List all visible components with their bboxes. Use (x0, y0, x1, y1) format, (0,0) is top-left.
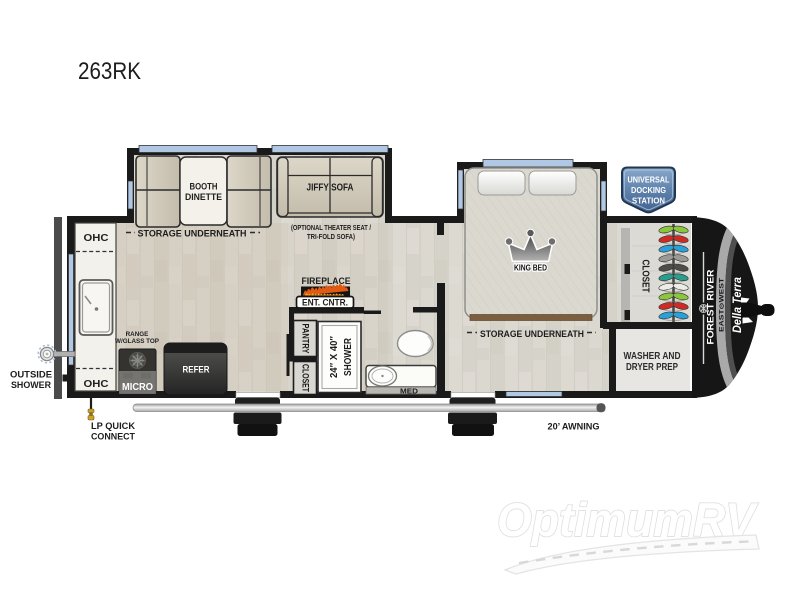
svg-text:(OPTIONAL THEATER SEAT /: (OPTIONAL THEATER SEAT / (291, 225, 371, 232)
svg-text:263RK: 263RK (78, 58, 141, 85)
svg-text:WASHER AND: WASHER AND (624, 351, 681, 362)
svg-text:RANGE: RANGE (126, 331, 149, 338)
svg-text:CONNECT: CONNECT (91, 432, 135, 443)
svg-text:EAST⊙WEST: EAST⊙WEST (718, 278, 725, 332)
svg-text:PANTRY: PANTRY (301, 324, 311, 354)
svg-text:W/GLASS TOP: W/GLASS TOP (115, 338, 159, 345)
svg-text:FIREPLACE: FIREPLACE (302, 276, 351, 287)
svg-text:LP QUICK: LP QUICK (91, 421, 135, 432)
svg-text:OHC: OHC (84, 378, 109, 390)
svg-text:DRYER PREP: DRYER PREP (626, 362, 678, 373)
svg-text:20’ AWNING: 20’ AWNING (548, 422, 600, 432)
svg-text:MICRO: MICRO (122, 382, 153, 393)
svg-text:24″ X 40″: 24″ X 40″ (328, 336, 340, 378)
svg-text:ENT. CNTR.: ENT. CNTR. (302, 298, 348, 308)
svg-text:CLOSET: CLOSET (301, 364, 311, 392)
svg-text:DOCKING: DOCKING (631, 186, 666, 195)
svg-text:REFER: REFER (183, 365, 210, 376)
svg-text:SHOWER: SHOWER (11, 380, 51, 391)
svg-text:TRI-FOLD SOFA): TRI-FOLD SOFA) (307, 234, 355, 241)
svg-text:UNIVERSAL: UNIVERSAL (628, 176, 670, 185)
svg-text:BOOTH: BOOTH (190, 182, 218, 192)
svg-text:CLOSET: CLOSET (640, 260, 652, 293)
svg-text:DINETTE: DINETTE (185, 192, 222, 202)
svg-text:SHOWER: SHOWER (342, 338, 354, 376)
svg-text:FOREST RIVER: FOREST RIVER (706, 269, 716, 345)
svg-text:STORAGE UNDERNEATH: STORAGE UNDERNEATH (480, 329, 584, 339)
svg-text:STORAGE UNDERNEATH: STORAGE UNDERNEATH (138, 229, 247, 239)
svg-text:STATION: STATION (632, 197, 665, 206)
svg-text:JIFFY SOFA: JIFFY SOFA (307, 182, 354, 194)
svg-text:OHC: OHC (84, 232, 109, 244)
svg-text:MED: MED (400, 387, 418, 396)
svg-text:KING BED: KING BED (514, 264, 547, 273)
svg-text:OUTSIDE: OUTSIDE (10, 370, 52, 381)
